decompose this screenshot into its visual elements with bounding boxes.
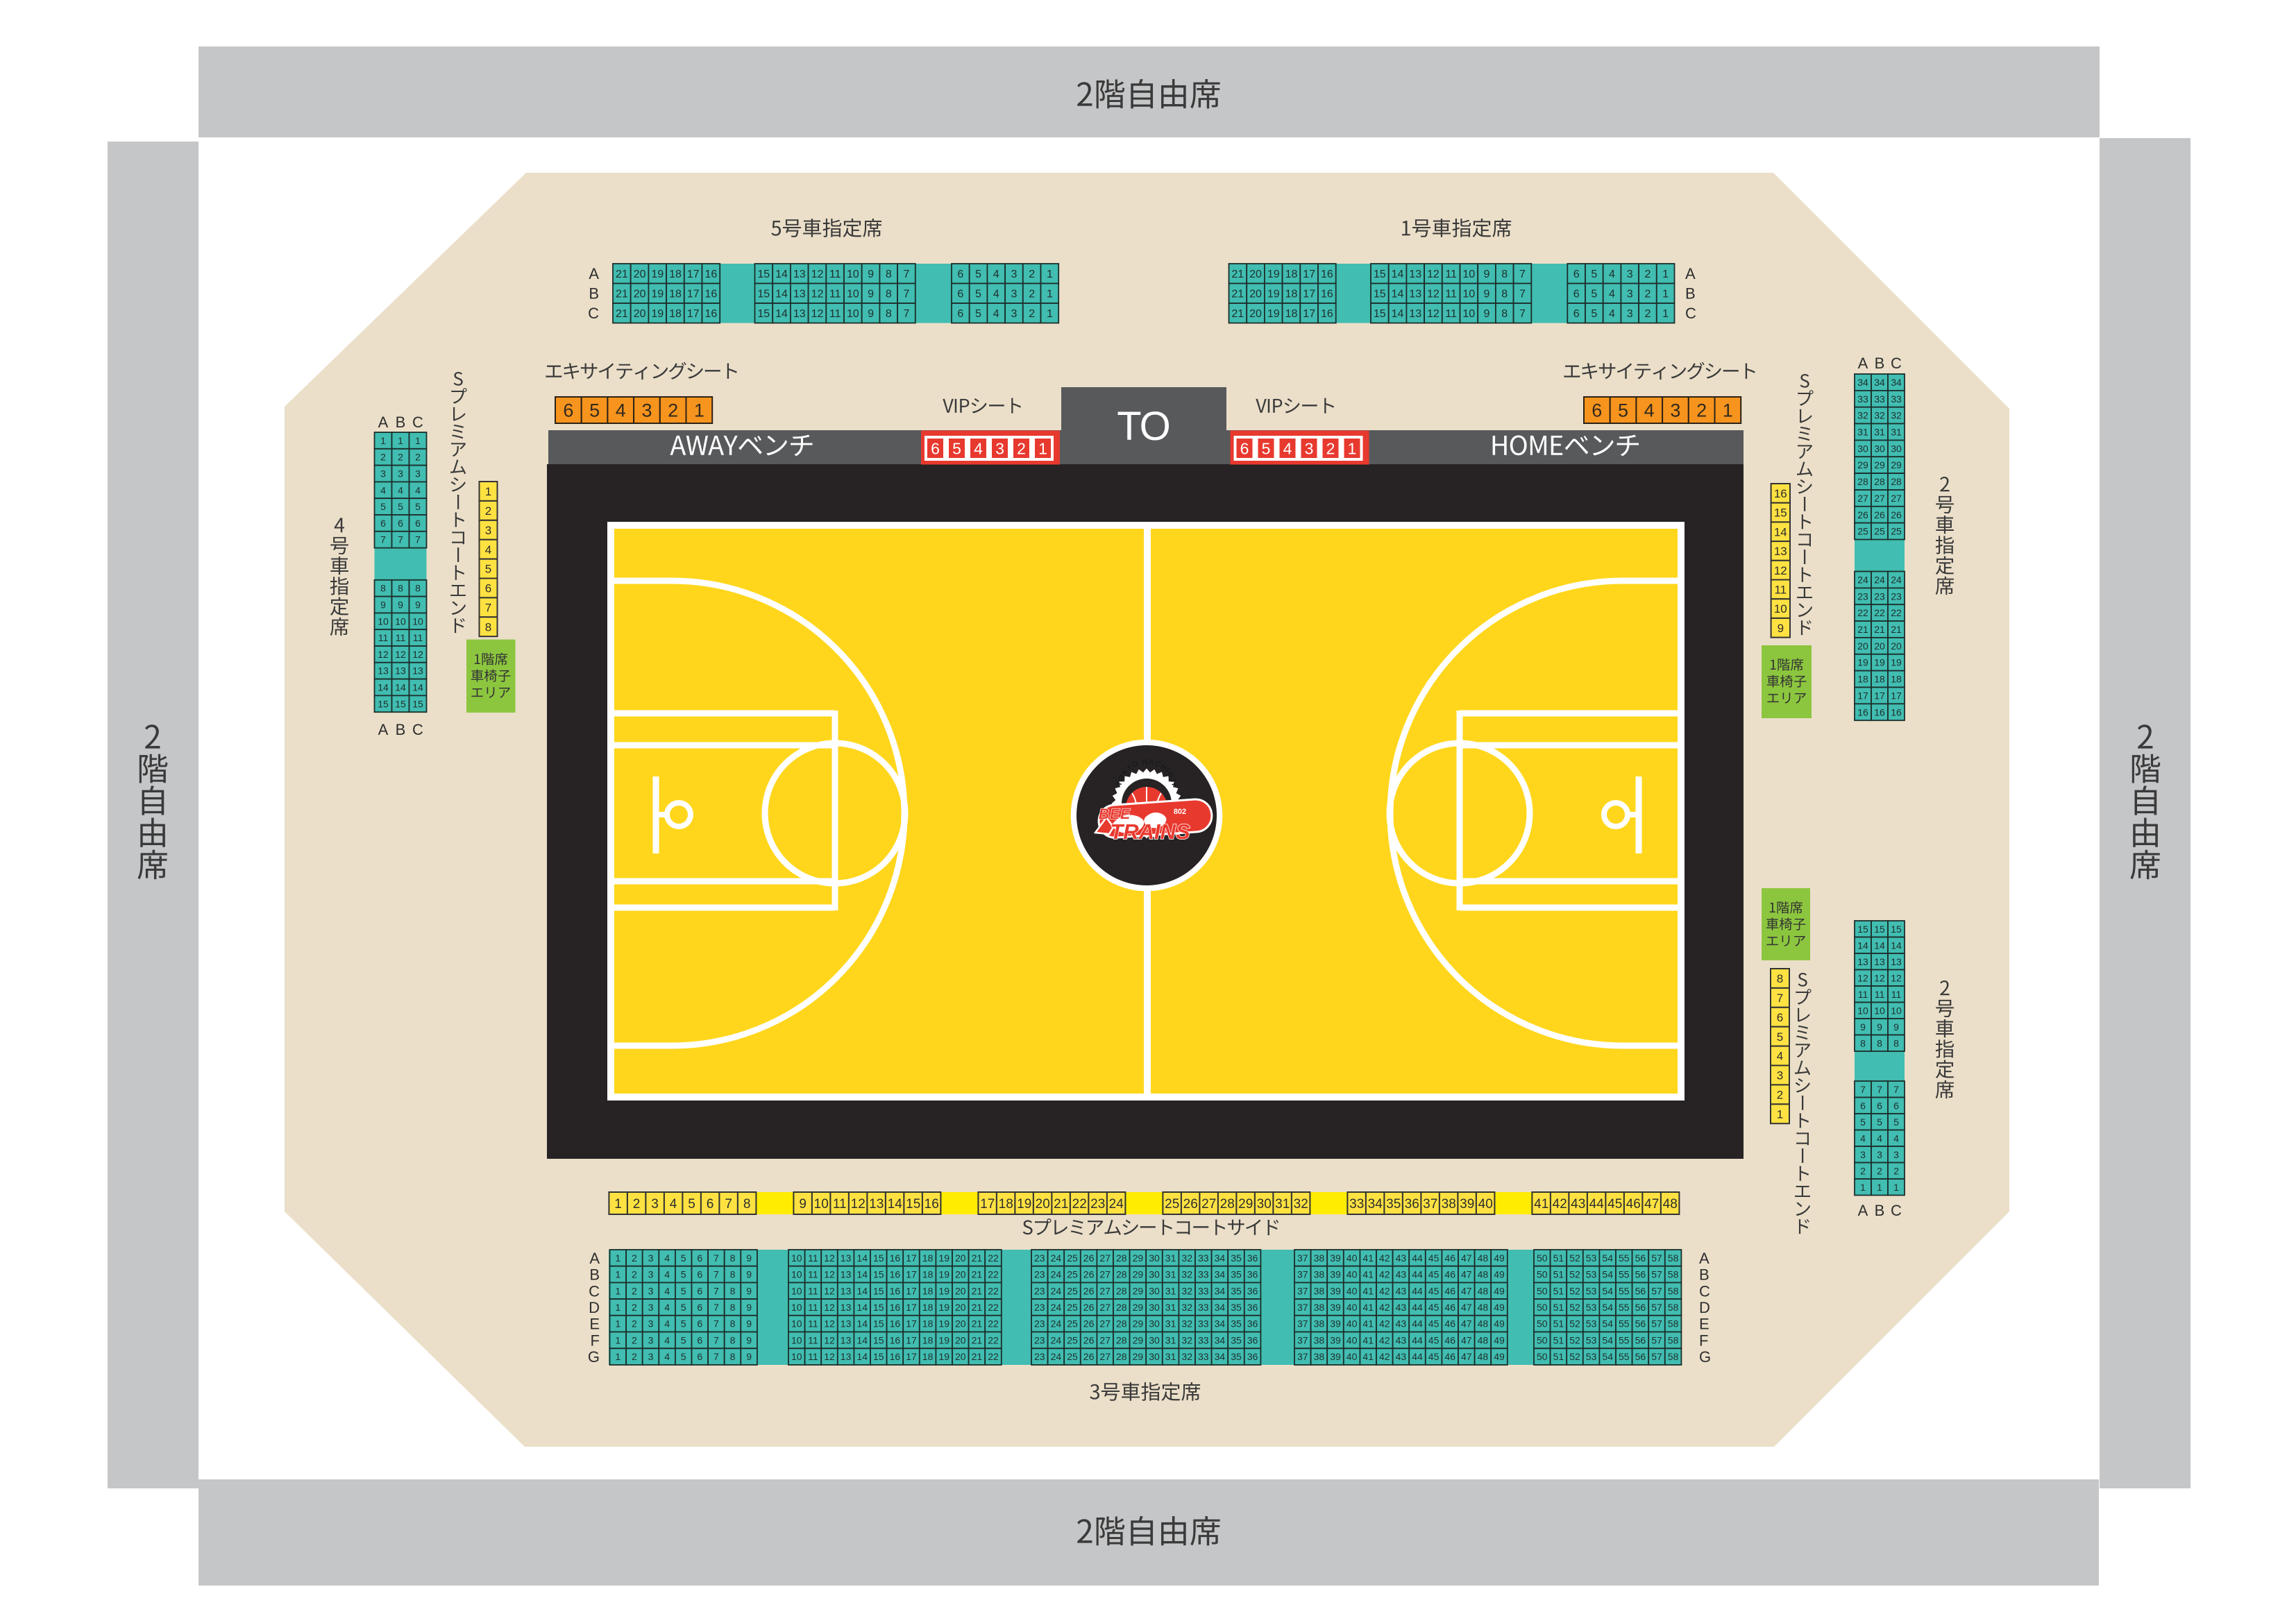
svg-text:B: B <box>396 721 406 738</box>
svg-text:14: 14 <box>856 1252 868 1264</box>
svg-text:41: 41 <box>1362 1318 1374 1329</box>
svg-text:1: 1 <box>1860 1182 1866 1193</box>
svg-text:5: 5 <box>681 1351 686 1362</box>
svg-text:33: 33 <box>1198 1285 1209 1296</box>
svg-text:32: 32 <box>1181 1318 1192 1329</box>
svg-text:2: 2 <box>1644 289 1651 300</box>
svg-text:43: 43 <box>1396 1318 1407 1329</box>
svg-text:49: 49 <box>1494 1351 1505 1362</box>
svg-text:39: 39 <box>1330 1285 1341 1296</box>
svg-text:42: 42 <box>1379 1334 1390 1345</box>
svg-text:29: 29 <box>1857 459 1868 470</box>
svg-text:12: 12 <box>395 649 406 660</box>
svg-text:30: 30 <box>1149 1302 1160 1313</box>
svg-text:3: 3 <box>398 468 403 479</box>
svg-text:7: 7 <box>904 269 910 280</box>
svg-text:23: 23 <box>1874 590 1885 602</box>
svg-text:16: 16 <box>1321 308 1333 320</box>
svg-text:17: 17 <box>906 1351 917 1362</box>
svg-text:16: 16 <box>890 1302 901 1313</box>
svg-text:33: 33 <box>1198 1302 1209 1313</box>
svg-text:30: 30 <box>1149 1285 1160 1296</box>
svg-text:5: 5 <box>1262 439 1271 457</box>
svg-text:43: 43 <box>1396 1334 1407 1345</box>
svg-text:31: 31 <box>1165 1302 1176 1313</box>
svg-text:17: 17 <box>1303 269 1315 280</box>
svg-text:2: 2 <box>632 1318 637 1329</box>
svg-text:15: 15 <box>873 1351 884 1362</box>
svg-text:58: 58 <box>1668 1334 1679 1345</box>
svg-text:14: 14 <box>1392 269 1404 280</box>
svg-text:1: 1 <box>1047 289 1053 300</box>
svg-text:16: 16 <box>705 289 718 300</box>
svg-text:53: 53 <box>1586 1302 1597 1313</box>
svg-text:10: 10 <box>1857 1005 1868 1016</box>
svg-text:3: 3 <box>1877 1149 1882 1160</box>
svg-text:46: 46 <box>1444 1252 1455 1264</box>
svg-text:14: 14 <box>856 1285 868 1296</box>
svg-text:27: 27 <box>1099 1285 1111 1296</box>
svg-text:14: 14 <box>395 682 406 693</box>
svg-text:57: 57 <box>1651 1318 1662 1329</box>
svg-text:2: 2 <box>485 504 491 518</box>
svg-text:C: C <box>412 721 423 738</box>
svg-text:44: 44 <box>1412 1318 1423 1329</box>
svg-text:40: 40 <box>1347 1269 1358 1280</box>
svg-text:28: 28 <box>1891 476 1902 487</box>
svg-text:21: 21 <box>972 1318 983 1329</box>
svg-text:16: 16 <box>890 1252 901 1264</box>
svg-text:14: 14 <box>1392 289 1404 300</box>
svg-text:30: 30 <box>1149 1269 1160 1280</box>
svg-text:11: 11 <box>808 1334 818 1345</box>
svg-text:22: 22 <box>988 1334 999 1345</box>
svg-text:26: 26 <box>1083 1351 1095 1362</box>
svg-text:5: 5 <box>1591 289 1597 300</box>
svg-text:13: 13 <box>378 665 389 677</box>
svg-text:24: 24 <box>1891 575 1902 586</box>
svg-text:4: 4 <box>670 1197 677 1212</box>
svg-text:10: 10 <box>412 615 423 627</box>
svg-text:6: 6 <box>1573 308 1580 320</box>
svg-text:20: 20 <box>955 1269 966 1280</box>
svg-text:18: 18 <box>999 1197 1013 1212</box>
svg-text:12: 12 <box>1427 269 1440 280</box>
svg-text:19: 19 <box>938 1318 949 1329</box>
svg-text:3: 3 <box>1893 1149 1899 1160</box>
svg-text:47: 47 <box>1461 1269 1472 1280</box>
svg-text:17: 17 <box>980 1197 995 1212</box>
svg-text:42: 42 <box>1379 1285 1390 1296</box>
svg-text:54: 54 <box>1602 1285 1613 1296</box>
svg-text:20: 20 <box>955 1285 966 1296</box>
svg-text:28: 28 <box>1116 1351 1127 1362</box>
svg-text:37: 37 <box>1297 1351 1308 1362</box>
svg-text:36: 36 <box>1247 1269 1258 1280</box>
svg-text:4: 4 <box>664 1318 670 1329</box>
svg-text:10: 10 <box>1874 1005 1885 1016</box>
svg-text:19: 19 <box>651 289 664 300</box>
svg-text:4: 4 <box>1644 400 1655 421</box>
svg-text:5: 5 <box>681 1252 686 1264</box>
svg-text:37: 37 <box>1297 1285 1308 1296</box>
svg-text:11: 11 <box>1774 584 1787 597</box>
svg-text:21: 21 <box>1231 269 1244 280</box>
svg-text:18: 18 <box>922 1334 934 1345</box>
svg-text:51: 51 <box>1553 1351 1564 1362</box>
svg-text:10: 10 <box>791 1302 802 1313</box>
svg-text:9: 9 <box>868 269 874 280</box>
svg-text:32: 32 <box>1891 410 1902 421</box>
svg-text:15: 15 <box>1857 924 1868 935</box>
svg-text:34: 34 <box>1215 1269 1226 1280</box>
svg-text:16: 16 <box>925 1197 939 1212</box>
svg-text:6: 6 <box>563 400 573 421</box>
svg-text:5: 5 <box>952 439 961 457</box>
svg-text:10: 10 <box>378 615 389 627</box>
svg-text:6: 6 <box>1777 1011 1783 1024</box>
svg-text:4: 4 <box>974 439 983 457</box>
svg-text:18: 18 <box>1285 289 1298 300</box>
svg-text:6: 6 <box>1877 1100 1882 1111</box>
svg-text:48: 48 <box>1478 1252 1489 1264</box>
svg-text:31: 31 <box>1165 1351 1176 1362</box>
svg-text:3: 3 <box>1860 1149 1866 1160</box>
svg-text:25: 25 <box>1067 1269 1078 1280</box>
svg-text:3: 3 <box>648 1334 654 1345</box>
svg-text:9: 9 <box>799 1197 807 1212</box>
svg-text:22: 22 <box>988 1351 999 1362</box>
svg-text:18: 18 <box>669 289 682 300</box>
svg-text:16: 16 <box>705 269 718 280</box>
svg-text:C: C <box>1699 1282 1710 1300</box>
svg-text:8: 8 <box>730 1351 736 1362</box>
svg-text:36: 36 <box>1247 1334 1258 1345</box>
svg-text:2: 2 <box>1777 1089 1783 1102</box>
svg-text:34: 34 <box>1891 377 1902 388</box>
svg-text:25: 25 <box>1891 526 1902 537</box>
svg-text:21: 21 <box>1054 1197 1068 1212</box>
svg-text:12: 12 <box>811 269 824 280</box>
svg-text:2: 2 <box>415 452 421 463</box>
svg-text:12: 12 <box>824 1318 835 1329</box>
svg-text:39: 39 <box>1330 1351 1341 1362</box>
svg-text:31: 31 <box>1275 1197 1290 1212</box>
svg-text:14: 14 <box>775 308 788 320</box>
svg-text:33: 33 <box>1198 1318 1209 1329</box>
svg-text:14: 14 <box>412 682 423 693</box>
svg-text:15: 15 <box>757 308 770 320</box>
svg-text:7: 7 <box>714 1285 719 1296</box>
svg-text:19: 19 <box>938 1285 949 1296</box>
svg-text:11: 11 <box>829 289 841 300</box>
svg-text:50: 50 <box>1537 1334 1548 1345</box>
svg-text:10: 10 <box>1462 269 1475 280</box>
svg-text:9: 9 <box>1877 1021 1882 1033</box>
svg-text:5: 5 <box>415 501 421 512</box>
svg-text:19: 19 <box>938 1302 949 1313</box>
svg-text:17: 17 <box>1874 690 1885 701</box>
svg-text:21: 21 <box>1891 624 1902 635</box>
svg-text:27: 27 <box>1891 493 1902 504</box>
svg-text:8: 8 <box>1501 269 1508 280</box>
svg-text:28: 28 <box>1116 1252 1127 1264</box>
svg-text:5: 5 <box>975 269 981 280</box>
svg-text:20: 20 <box>1249 308 1262 320</box>
svg-text:8: 8 <box>380 583 386 594</box>
svg-text:24: 24 <box>1051 1302 1062 1313</box>
svg-text:B: B <box>1685 285 1696 303</box>
svg-text:10: 10 <box>791 1318 802 1329</box>
svg-text:20: 20 <box>1857 640 1868 652</box>
svg-text:24: 24 <box>1874 575 1885 586</box>
svg-text:19: 19 <box>938 1269 949 1280</box>
svg-text:B: B <box>1875 1202 1885 1219</box>
svg-text:14: 14 <box>856 1318 868 1329</box>
svg-text:19: 19 <box>1267 289 1280 300</box>
svg-text:7: 7 <box>1519 308 1526 320</box>
svg-text:28: 28 <box>1116 1318 1127 1329</box>
svg-text:26: 26 <box>1083 1318 1095 1329</box>
svg-text:34: 34 <box>1215 1334 1226 1345</box>
svg-text:48: 48 <box>1663 1197 1678 1212</box>
svg-text:29: 29 <box>1133 1302 1144 1313</box>
svg-text:8: 8 <box>730 1285 736 1296</box>
svg-text:10: 10 <box>791 1269 802 1280</box>
svg-text:16: 16 <box>890 1269 901 1280</box>
svg-text:39: 39 <box>1330 1269 1341 1280</box>
svg-text:40: 40 <box>1347 1302 1358 1313</box>
svg-text:13: 13 <box>841 1252 852 1264</box>
svg-text:37: 37 <box>1297 1302 1308 1313</box>
svg-text:3: 3 <box>1777 1069 1783 1082</box>
svg-text:38: 38 <box>1314 1269 1325 1280</box>
svg-text:10: 10 <box>847 308 859 320</box>
svg-text:35: 35 <box>1231 1351 1242 1362</box>
svg-text:9: 9 <box>746 1252 752 1264</box>
svg-text:18: 18 <box>1857 674 1868 685</box>
svg-text:10: 10 <box>1774 602 1787 615</box>
svg-text:25: 25 <box>1067 1351 1078 1362</box>
svg-text:14: 14 <box>1774 525 1787 538</box>
svg-text:47: 47 <box>1644 1197 1659 1212</box>
svg-text:10: 10 <box>791 1334 802 1345</box>
svg-text:10: 10 <box>791 1252 802 1264</box>
svg-text:2: 2 <box>1029 308 1035 320</box>
svg-text:7: 7 <box>714 1252 719 1264</box>
svg-text:40: 40 <box>1347 1285 1358 1296</box>
svg-text:33: 33 <box>1349 1197 1364 1212</box>
svg-text:4: 4 <box>993 269 999 280</box>
svg-text:41: 41 <box>1362 1285 1374 1296</box>
svg-text:20: 20 <box>634 289 646 300</box>
svg-text:7: 7 <box>1893 1084 1899 1095</box>
svg-text:15: 15 <box>1374 289 1386 300</box>
svg-text:7: 7 <box>714 1318 719 1329</box>
svg-text:39: 39 <box>1330 1318 1341 1329</box>
svg-text:2: 2 <box>632 1285 637 1296</box>
svg-text:10: 10 <box>847 289 859 300</box>
svg-text:3: 3 <box>648 1318 654 1329</box>
svg-text:18: 18 <box>922 1318 934 1329</box>
svg-text:23: 23 <box>1034 1318 1045 1329</box>
svg-text:12: 12 <box>378 649 389 660</box>
svg-text:34: 34 <box>1215 1252 1226 1264</box>
svg-text:52: 52 <box>1569 1302 1580 1313</box>
svg-text:7: 7 <box>904 308 910 320</box>
svg-text:29: 29 <box>1133 1269 1144 1280</box>
svg-text:TRAINS: TRAINS <box>1110 819 1190 844</box>
svg-text:9: 9 <box>398 600 403 611</box>
svg-text:5: 5 <box>1777 1030 1783 1044</box>
svg-text:7: 7 <box>485 602 491 615</box>
svg-text:10: 10 <box>791 1285 802 1296</box>
svg-text:20: 20 <box>634 308 646 320</box>
svg-text:A: A <box>589 1250 600 1267</box>
svg-text:37: 37 <box>1297 1252 1308 1264</box>
svg-text:11: 11 <box>378 632 389 643</box>
svg-text:44: 44 <box>1412 1351 1423 1362</box>
svg-text:53: 53 <box>1586 1269 1597 1280</box>
svg-text:30: 30 <box>1149 1252 1160 1264</box>
svg-text:8: 8 <box>398 583 403 594</box>
svg-text:46: 46 <box>1444 1269 1455 1280</box>
svg-text:57: 57 <box>1651 1285 1662 1296</box>
svg-text:46: 46 <box>1444 1285 1455 1296</box>
svg-text:49: 49 <box>1494 1302 1505 1313</box>
svg-text:9: 9 <box>415 600 421 611</box>
svg-text:33: 33 <box>1198 1269 1209 1280</box>
svg-text:25: 25 <box>1067 1318 1078 1329</box>
svg-text:3: 3 <box>1011 289 1018 300</box>
svg-text:A: A <box>1685 265 1696 282</box>
svg-text:6: 6 <box>697 1269 702 1280</box>
svg-text:57: 57 <box>1651 1334 1662 1345</box>
svg-text:7: 7 <box>1519 289 1526 300</box>
svg-text:27: 27 <box>1099 1252 1111 1264</box>
svg-text:7: 7 <box>1777 992 1783 1005</box>
svg-text:43: 43 <box>1571 1197 1585 1212</box>
svg-text:51: 51 <box>1553 1285 1564 1296</box>
svg-text:27: 27 <box>1099 1269 1111 1280</box>
svg-text:13: 13 <box>1891 956 1902 967</box>
svg-text:6: 6 <box>697 1302 702 1313</box>
svg-text:49: 49 <box>1494 1318 1505 1329</box>
svg-text:1: 1 <box>1777 1107 1783 1121</box>
svg-text:21: 21 <box>616 269 628 280</box>
svg-text:23: 23 <box>1034 1252 1045 1264</box>
svg-text:27: 27 <box>1099 1318 1111 1329</box>
svg-text:49: 49 <box>1494 1285 1505 1296</box>
svg-text:1: 1 <box>614 1197 622 1212</box>
svg-text:1: 1 <box>694 400 704 421</box>
svg-text:8: 8 <box>730 1318 736 1329</box>
svg-text:18: 18 <box>1891 674 1902 685</box>
svg-text:11: 11 <box>396 632 406 643</box>
svg-text:25: 25 <box>1857 526 1868 537</box>
svg-text:16: 16 <box>1774 487 1787 500</box>
svg-text:45: 45 <box>1428 1252 1440 1264</box>
svg-text:2: 2 <box>380 452 386 463</box>
svg-text:57: 57 <box>1651 1302 1662 1313</box>
svg-text:24: 24 <box>1051 1252 1062 1264</box>
svg-text:7: 7 <box>904 289 910 300</box>
svg-text:25: 25 <box>1067 1285 1078 1296</box>
svg-text:32: 32 <box>1874 410 1885 421</box>
svg-text:30: 30 <box>1149 1334 1160 1345</box>
svg-text:26: 26 <box>1874 509 1885 520</box>
svg-text:8: 8 <box>1893 1037 1899 1048</box>
svg-text:46: 46 <box>1626 1197 1641 1212</box>
svg-text:51: 51 <box>1553 1269 1564 1280</box>
svg-text:2: 2 <box>632 1351 637 1362</box>
svg-text:23: 23 <box>1034 1269 1045 1280</box>
svg-text:42: 42 <box>1379 1269 1390 1280</box>
svg-text:1: 1 <box>615 1285 621 1296</box>
svg-text:15: 15 <box>757 269 770 280</box>
svg-text:3: 3 <box>380 468 386 479</box>
svg-text:10: 10 <box>395 615 406 627</box>
svg-text:47: 47 <box>1461 1351 1472 1362</box>
svg-text:31: 31 <box>1165 1269 1176 1280</box>
svg-text:54: 54 <box>1602 1302 1613 1313</box>
svg-text:8: 8 <box>730 1252 736 1264</box>
svg-text:52: 52 <box>1569 1351 1580 1362</box>
svg-text:6: 6 <box>1240 439 1249 457</box>
svg-text:1: 1 <box>485 485 491 498</box>
svg-text:8: 8 <box>1777 972 1783 985</box>
svg-text:54: 54 <box>1602 1269 1613 1280</box>
svg-text:35: 35 <box>1231 1318 1242 1329</box>
svg-text:39: 39 <box>1460 1197 1474 1212</box>
svg-text:18: 18 <box>922 1302 934 1313</box>
svg-text:58: 58 <box>1668 1269 1679 1280</box>
svg-text:11: 11 <box>808 1318 818 1329</box>
svg-text:56: 56 <box>1635 1318 1646 1329</box>
svg-text:26: 26 <box>1083 1252 1095 1264</box>
svg-text:12: 12 <box>1427 308 1440 320</box>
svg-text:B: B <box>1699 1266 1710 1284</box>
svg-text:1: 1 <box>415 435 421 446</box>
svg-text:44: 44 <box>1412 1269 1423 1280</box>
svg-text:12: 12 <box>824 1285 835 1296</box>
svg-text:12: 12 <box>851 1197 866 1212</box>
svg-text:13: 13 <box>395 665 406 677</box>
svg-text:15: 15 <box>412 698 423 709</box>
svg-text:25: 25 <box>1067 1334 1078 1345</box>
svg-text:6: 6 <box>398 518 403 529</box>
svg-text:E: E <box>589 1316 600 1333</box>
svg-text:46: 46 <box>1444 1334 1455 1345</box>
svg-text:21: 21 <box>616 308 628 320</box>
svg-text:12: 12 <box>1857 972 1868 983</box>
svg-text:A: A <box>1699 1250 1710 1267</box>
svg-text:48: 48 <box>1478 1318 1489 1329</box>
svg-text:45: 45 <box>1428 1285 1440 1296</box>
svg-text:B: B <box>396 414 406 431</box>
svg-text:11: 11 <box>833 1197 847 1212</box>
svg-text:48: 48 <box>1478 1334 1489 1345</box>
svg-text:43: 43 <box>1396 1302 1407 1313</box>
svg-text:1: 1 <box>398 435 403 446</box>
svg-text:50: 50 <box>1537 1285 1548 1296</box>
svg-text:2: 2 <box>398 452 403 463</box>
svg-text:22: 22 <box>988 1285 999 1296</box>
svg-text:18: 18 <box>922 1269 934 1280</box>
svg-text:26: 26 <box>1083 1334 1095 1345</box>
svg-text:38: 38 <box>1314 1302 1325 1313</box>
svg-text:55: 55 <box>1619 1269 1630 1280</box>
